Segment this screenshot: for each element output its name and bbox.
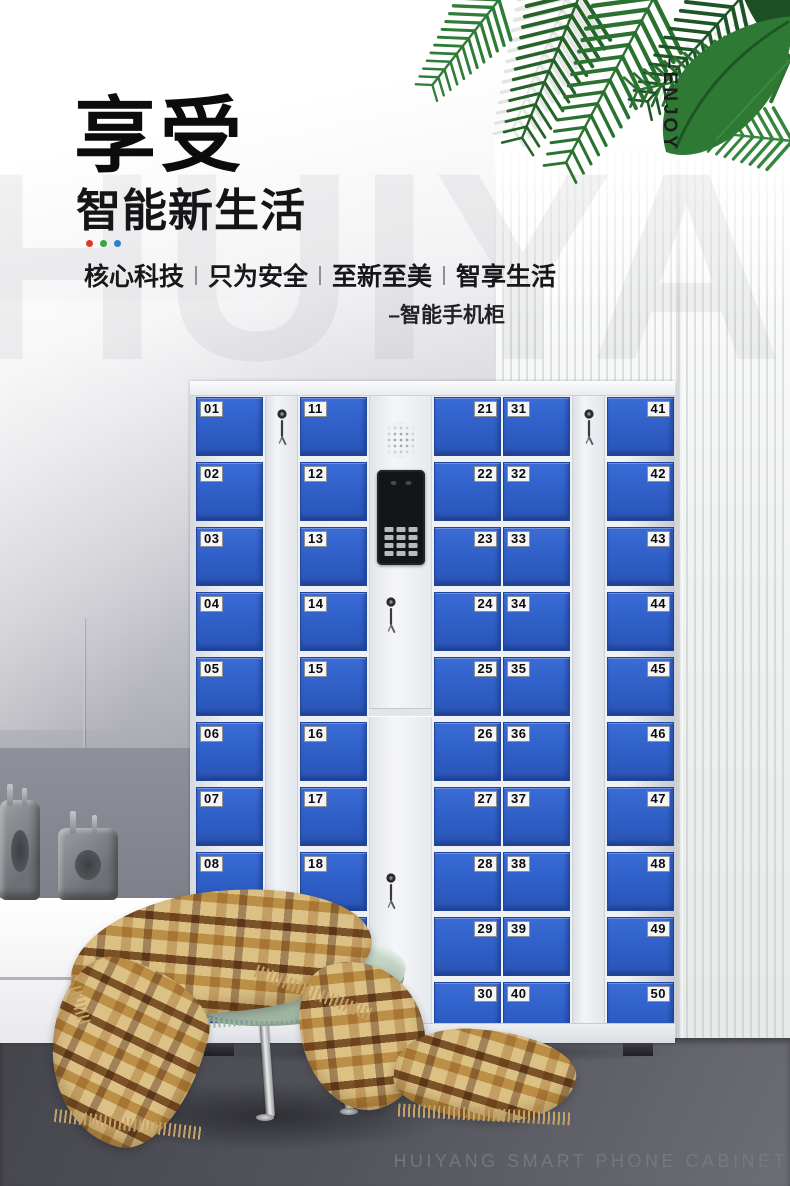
slogan-separator: [443, 266, 445, 285]
locker-door: 37: [503, 787, 570, 846]
vase-stick: [92, 815, 97, 834]
locker-number: 05: [200, 661, 223, 677]
locker-door: 03: [196, 527, 263, 586]
locker-door: 32: [503, 462, 570, 521]
locker-number: 38: [507, 856, 530, 872]
locker-door: 02: [196, 462, 263, 521]
locker-door: 07: [196, 787, 263, 846]
locker-number: 08: [200, 856, 223, 872]
vertical-enjoy-text: –ENJOY: [658, 58, 680, 151]
locker-number: 24: [474, 596, 497, 612]
footer-caption: HUIYANG SMART PHONE CABINET: [393, 1151, 790, 1172]
control-door-split: [369, 708, 432, 717]
camera-lens-icon: [390, 481, 411, 485]
locker-number: 03: [200, 531, 223, 547]
locker-number: 33: [507, 531, 530, 547]
locker-door: 44: [607, 592, 674, 651]
slogan-item: 至新至美: [332, 257, 432, 293]
locker-door: 16: [300, 722, 367, 781]
locker-door: 01: [196, 397, 263, 456]
cabinet-foot-left: [204, 1043, 234, 1056]
slogan-item: 智享生活: [456, 257, 556, 293]
locker-door: 28: [434, 852, 501, 911]
vase-left: [0, 800, 40, 900]
locker-number: 45: [647, 661, 670, 677]
locker-number: 44: [647, 596, 670, 612]
key-lock-icon: [383, 596, 399, 642]
locker-number: 21: [474, 401, 497, 417]
stool-leg-cap: [256, 1114, 274, 1121]
column-key-lock: [581, 408, 597, 459]
locker-door: 39: [503, 917, 570, 976]
locker-number: 12: [304, 466, 327, 482]
locker-number: 37: [507, 791, 530, 807]
locker-door: 45: [607, 657, 674, 716]
locker-door: 29: [434, 917, 501, 976]
locker-number: 46: [647, 726, 670, 742]
control-column: [369, 396, 432, 1023]
locker-door: 48: [607, 852, 674, 911]
accent-dots: [86, 240, 121, 247]
locker-number: 30: [474, 986, 497, 1002]
locker-door: 41: [607, 397, 674, 456]
locker-column: 31323334353637383940: [503, 396, 570, 1024]
locker-door: 31: [503, 397, 570, 456]
locker-number: 42: [647, 466, 670, 482]
locker-door: 21: [434, 397, 501, 456]
locker-number: 31: [507, 401, 530, 417]
slogan-separator: [195, 266, 197, 285]
locker-door: 46: [607, 722, 674, 781]
locker-door: 47: [607, 787, 674, 846]
locker-door: 34: [503, 592, 570, 651]
locker-column: 41424344454647484950: [607, 396, 674, 1024]
locker-door: 13: [300, 527, 367, 586]
locker-door: 33: [503, 527, 570, 586]
slogan-row: 核心科技只为安全至新至美智享生活: [84, 257, 556, 293]
column-key-lock: [274, 408, 290, 459]
locker-door: 24: [434, 592, 501, 651]
locker-number: 49: [647, 921, 670, 937]
lower-door-key-lock: [383, 872, 399, 923]
key-lock-icon: [581, 408, 597, 454]
key-lock-icon: [274, 408, 290, 454]
locker-number: 22: [474, 466, 497, 482]
locker-number: 32: [507, 466, 530, 482]
locker-number: 01: [200, 401, 223, 417]
stool-leg-cap: [340, 1108, 358, 1115]
accent-dot: [100, 240, 107, 247]
speaker-grille-icon: [383, 422, 419, 458]
hero-title: 享受: [74, 96, 246, 178]
locker-number: 40: [507, 986, 530, 1002]
locker-door: 35: [503, 657, 570, 716]
poster: HUIYANG 享受 智能新生活 核心科技只为安全至新至美智享生活 –智能手机柜…: [0, 0, 790, 1186]
locker-number: 11: [304, 401, 327, 417]
locker-door: 15: [300, 657, 367, 716]
accent-dot: [86, 240, 93, 247]
locker-door: 27: [434, 787, 501, 846]
locker-column: 21222324252627282930: [434, 396, 501, 1024]
vase-stick: [22, 788, 27, 806]
locker-number: 48: [647, 856, 670, 872]
slogan-separator: [319, 266, 321, 285]
slogan-item: 核心科技: [84, 257, 184, 293]
key-lock-icon: [383, 872, 399, 918]
locker-door: 11: [300, 397, 367, 456]
locker-number: 04: [200, 596, 223, 612]
locker-number: 36: [507, 726, 530, 742]
locker-number: 23: [474, 531, 497, 547]
locker-number: 28: [474, 856, 497, 872]
locker-door: 25: [434, 657, 501, 716]
locker-number: 15: [304, 661, 327, 677]
cabinet-foot-right: [623, 1043, 653, 1056]
locker-door: 49: [607, 917, 674, 976]
slogan-item: 只为安全: [208, 257, 308, 293]
locker-number: 13: [304, 531, 327, 547]
locker-door: 06: [196, 722, 263, 781]
locker-door: 38: [503, 852, 570, 911]
hero-subtitle: 智能新生活: [76, 188, 306, 233]
locker-number: 50: [647, 986, 670, 1002]
locker-number: 34: [507, 596, 530, 612]
locker-door: 42: [607, 462, 674, 521]
locker-door: 05: [196, 657, 263, 716]
numeric-keypad-icon: [384, 527, 417, 556]
locker-number: 41: [647, 401, 670, 417]
locker-number: 06: [200, 726, 223, 742]
locker-number: 27: [474, 791, 497, 807]
locker-door: 26: [434, 722, 501, 781]
locker-number: 47: [647, 791, 670, 807]
locker-number: 35: [507, 661, 530, 677]
upper-door-key-lock: [383, 596, 399, 647]
locker-door: 36: [503, 722, 570, 781]
locker-door: 22: [434, 462, 501, 521]
cabinet-top-cap: [190, 381, 675, 396]
accent-dot: [114, 240, 121, 247]
locker-door: 14: [300, 592, 367, 651]
locker-number: 17: [304, 791, 327, 807]
master-lock-column: [572, 396, 605, 1023]
locker-door: 43: [607, 527, 674, 586]
vase-right: [58, 828, 118, 900]
locker-door: 17: [300, 787, 367, 846]
locker-number: 39: [507, 921, 530, 937]
hero-tagline: –智能手机柜: [250, 299, 505, 329]
locker-number: 14: [304, 596, 327, 612]
camera-screen-panel: [377, 470, 425, 565]
locker-number: 26: [474, 726, 497, 742]
vase-stick: [70, 811, 76, 834]
locker-number: 02: [200, 466, 223, 482]
locker-number: 16: [304, 726, 327, 742]
locker-door: 23: [434, 527, 501, 586]
vase-stick: [7, 784, 13, 806]
locker-number: 25: [474, 661, 497, 677]
locker-door: 04: [196, 592, 263, 651]
locker-number: 43: [647, 531, 670, 547]
locker-number: 29: [474, 921, 497, 937]
locker-number: 07: [200, 791, 223, 807]
locker-door: 12: [300, 462, 367, 521]
locker-number: 18: [304, 856, 327, 872]
